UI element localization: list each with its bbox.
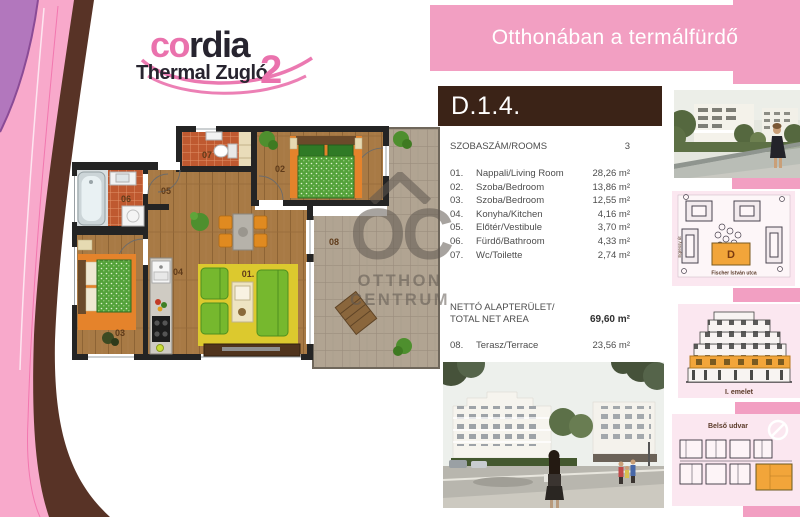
room-name: Szoba/Bedroom [476, 194, 574, 208]
room-area: 13,86 m² [574, 181, 630, 195]
rooms-count-value: 3 [574, 140, 630, 153]
room-num: 06. [450, 235, 476, 249]
room-area: 2,74 m² [574, 249, 630, 263]
label-bathroom: 06 [121, 194, 131, 204]
room-row: 02.Szoba/Bedroom13,86 m² [450, 181, 630, 195]
room-num: 01. [450, 167, 476, 181]
brand-wordmark: cordia [150, 24, 249, 66]
label-bedroom3: 03 [115, 328, 125, 338]
room-list: 01.Nappali/Living Room28,26 m² 02.Szoba/… [450, 167, 630, 262]
room-row: 07.Wc/Toilette2,74 m² [450, 249, 630, 263]
brand-rdia: rdia [189, 24, 249, 65]
room-row: 05.Előtér/Vestibule3,70 m² [450, 221, 630, 235]
room-num: 03. [450, 194, 476, 208]
kitchen-counter [150, 258, 172, 354]
room-row: 03.Szoba/Bedroom12,55 m² [450, 194, 630, 208]
cordia-logo: cordia Thermal Zugló 2 [128, 18, 328, 100]
street-label-left: Egressy út [677, 236, 682, 258]
room-area: 3,70 m² [574, 221, 630, 235]
room-row: 06.Fürdő/Bathroom4,33 m² [450, 235, 630, 249]
terrace-row: 08. Terasz/Terrace 23,56 m² [450, 339, 630, 353]
label-kitchen: 04 [173, 267, 183, 277]
washing-machine [122, 206, 144, 226]
room-row: 01.Nappali/Living Room28,26 m² [450, 167, 630, 181]
elevation-thumb: I. emelet [678, 304, 800, 398]
room-name: Fürdő/Bathroom [476, 235, 574, 249]
bathtub [78, 172, 105, 225]
label-vestibule: 05 [161, 186, 171, 196]
street-render-photo [443, 362, 664, 508]
room-name: Szoba/Bedroom [476, 181, 574, 195]
brand-product-name: Thermal Zugló [136, 62, 267, 85]
room-area: 4,16 m² [574, 208, 630, 222]
pink-accent-strip [743, 506, 800, 517]
unit-highlight [756, 464, 792, 490]
room-name: Nappali/Living Room [476, 167, 574, 181]
slogan-text: Otthonában a termálfürdő [492, 26, 739, 50]
room-name: Wc/Toilette [476, 249, 574, 263]
label-living: 01. [242, 269, 255, 279]
building-d-label: D [727, 249, 735, 261]
net-label-line1: NETTÓ ALAPTERÜLET/ [450, 302, 570, 314]
pink-accent-strip [732, 178, 800, 189]
label-bedroom2: 02 [275, 164, 285, 174]
flyer-page: cordia Thermal Zugló 2 Otthonában a term… [0, 0, 800, 517]
unit-info-panel: SZOBASZÁM/ROOMS 3 01.Nappali/Living Room… [450, 140, 630, 353]
unit-code: D.1.4. [438, 92, 521, 121]
label-terrace: 08 [329, 237, 339, 247]
brand-co: co [150, 24, 189, 65]
pink-accent-strip [733, 288, 800, 302]
site-plan-thumb: D Fischer István utca Egressy út [672, 191, 795, 286]
street-label-bottom: Fischer István utca [711, 271, 757, 277]
slogan-banner: Otthonában a termálfürdő [430, 5, 800, 71]
room-num: 07. [450, 249, 476, 263]
pink-accent-strip [735, 402, 800, 414]
floor-plan: 07 05 06 02 03 04 01. 08 [70, 112, 442, 374]
room-area: 12,55 m² [574, 194, 630, 208]
room-num: 04. [450, 208, 476, 222]
room-area: 4,33 m² [574, 235, 630, 249]
net-label-line2: TOTAL NET AREA [450, 314, 570, 326]
brand-number: 2 [260, 48, 282, 93]
room-name: Előtér/Vestibule [476, 221, 574, 235]
room-num: 02. [450, 181, 476, 195]
room-name: Konyha/Kitchen [476, 208, 574, 222]
net-area-row: NETTÓ ALAPTERÜLET/ TOTAL NET AREA 69,60 … [450, 302, 630, 326]
building-render-thumb [674, 90, 800, 178]
unit-title-bar: D.1.4. [438, 86, 662, 126]
room-num: 05. [450, 221, 476, 235]
net-area-value: 69,60 m² [570, 314, 630, 326]
floor-key-thumb: Belső udvar [672, 414, 800, 506]
label-wc: 07 [202, 150, 212, 160]
room-row: 04.Konyha/Kitchen4,16 m² [450, 208, 630, 222]
room-num: 08. [450, 339, 476, 353]
rooms-count-label: SZOBASZÁM/ROOMS [450, 140, 574, 153]
rooms-count-row: SZOBASZÁM/ROOMS 3 [450, 140, 630, 153]
bathroom-sink [110, 172, 136, 185]
room-area: 28,26 m² [574, 167, 630, 181]
room-area: 23,56 m² [574, 339, 630, 353]
courtyard-caption: Belső udvar [708, 423, 748, 430]
hall-closet [239, 132, 253, 170]
room-name: Terasz/Terrace [476, 339, 574, 353]
floor-caption: I. emelet [725, 389, 754, 396]
net-area-label: NETTÓ ALAPTERÜLET/ TOTAL NET AREA [450, 302, 570, 326]
